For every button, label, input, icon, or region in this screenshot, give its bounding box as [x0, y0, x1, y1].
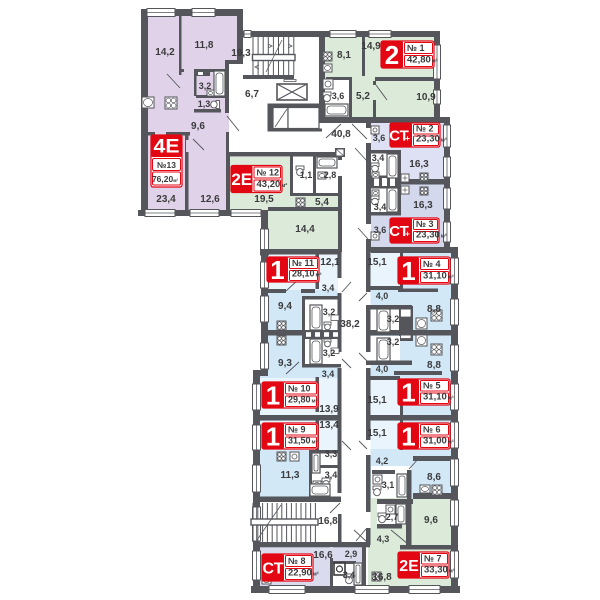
svg-text:м²: м² — [448, 395, 454, 402]
svg-text:1,3: 1,3 — [198, 99, 211, 109]
svg-text:29,80: 29,80 — [288, 395, 311, 405]
svg-text:14,4: 14,4 — [295, 224, 315, 235]
svg-text:38,2: 38,2 — [340, 319, 360, 330]
svg-text:№ 8: № 8 — [288, 556, 306, 566]
svg-text:31,50: 31,50 — [288, 436, 311, 446]
svg-text:№ 9: № 9 — [288, 425, 306, 435]
svg-text:14,9: 14,9 — [361, 41, 381, 52]
svg-text:№ 6: № 6 — [423, 425, 441, 435]
svg-text:33,30: 33,30 — [424, 565, 448, 576]
svg-text:4,0: 4,0 — [376, 364, 389, 374]
svg-text:м²: м² — [448, 274, 454, 281]
svg-text:23,30: 23,30 — [416, 230, 440, 241]
svg-text:16,3: 16,3 — [413, 200, 433, 211]
svg-text:4,3: 4,3 — [377, 534, 390, 544]
svg-text:13,4: 13,4 — [319, 420, 339, 431]
svg-text:13,9: 13,9 — [319, 404, 339, 415]
svg-text:23,30: 23,30 — [416, 134, 440, 145]
svg-text:2,7: 2,7 — [386, 512, 399, 522]
svg-text:1: 1 — [401, 256, 415, 286]
svg-text:1: 1 — [401, 377, 415, 407]
svg-text:23,4: 23,4 — [156, 194, 176, 205]
svg-text:м²: м² — [316, 272, 322, 279]
svg-text:5,2: 5,2 — [356, 91, 370, 102]
svg-text:+: + — [405, 134, 410, 143]
svg-text:3,2: 3,2 — [199, 81, 212, 91]
svg-text:9,4: 9,4 — [278, 301, 292, 312]
svg-text:4,0: 4,0 — [376, 291, 389, 301]
svg-text:9,3: 9,3 — [278, 358, 292, 369]
svg-text:м²: м² — [313, 571, 319, 578]
svg-text:3,1: 3,1 — [382, 480, 395, 490]
svg-text:№ 7: № 7 — [424, 554, 442, 564]
svg-text:1: 1 — [401, 421, 415, 451]
svg-text:2Е: 2Е — [231, 170, 252, 189]
svg-text:12,1: 12,1 — [320, 257, 340, 268]
svg-text:+: + — [405, 230, 410, 239]
svg-text:м²: м² — [449, 568, 455, 575]
svg-text:11,3: 11,3 — [281, 470, 300, 481]
svg-text:м²: м² — [432, 58, 438, 65]
svg-text:9,6: 9,6 — [424, 515, 438, 526]
svg-text:3,4: 3,4 — [372, 153, 385, 163]
svg-text:12,6: 12,6 — [200, 194, 220, 205]
svg-text:м²: м² — [312, 439, 318, 446]
svg-text:16,3: 16,3 — [409, 159, 429, 170]
svg-text:3,2: 3,2 — [323, 348, 336, 358]
svg-text:3,4: 3,4 — [343, 570, 356, 580]
svg-text:№13: №13 — [157, 160, 176, 170]
svg-text:3,6: 3,6 — [332, 91, 345, 101]
svg-text:3,2: 3,2 — [323, 307, 336, 317]
svg-text:28,10: 28,10 — [292, 269, 315, 279]
svg-text:11,8: 11,8 — [195, 40, 214, 51]
svg-text:3,6: 3,6 — [374, 225, 387, 235]
svg-text:м²: м² — [281, 182, 287, 189]
svg-text:15,1: 15,1 — [367, 395, 387, 406]
svg-text:2: 2 — [385, 40, 399, 70]
svg-text:15,1: 15,1 — [367, 257, 387, 268]
svg-text:2,8: 2,8 — [324, 170, 337, 180]
svg-text:1: 1 — [270, 255, 284, 285]
svg-text:4,2: 4,2 — [376, 456, 389, 466]
svg-text:м²: м² — [441, 137, 447, 144]
svg-text:6,7: 6,7 — [245, 89, 259, 100]
svg-text:№ 10: № 10 — [288, 384, 311, 394]
svg-text:31,00: 31,00 — [423, 436, 447, 447]
svg-text:№ 12: № 12 — [257, 168, 280, 178]
svg-text:8,1: 8,1 — [337, 50, 351, 61]
svg-text:№ 11: № 11 — [292, 258, 314, 268]
svg-text:16,6: 16,6 — [313, 550, 333, 561]
svg-text:10,9: 10,9 — [416, 92, 436, 103]
svg-text:43,20: 43,20 — [257, 179, 281, 190]
svg-text:3,2: 3,2 — [387, 314, 400, 324]
svg-text:1: 1 — [266, 380, 280, 410]
svg-text:9,6: 9,6 — [191, 121, 205, 132]
svg-text:19,3: 19,3 — [231, 48, 251, 59]
svg-text:3,4: 3,4 — [325, 470, 338, 480]
svg-text:3,4: 3,4 — [322, 369, 335, 379]
svg-text:19,5: 19,5 — [254, 194, 274, 205]
svg-text:8,8: 8,8 — [427, 360, 441, 371]
svg-text:3,4: 3,4 — [322, 283, 335, 293]
svg-text:3,3: 3,3 — [325, 449, 338, 459]
svg-text:4Е: 4Е — [154, 137, 180, 158]
svg-text:1,1: 1,1 — [300, 170, 313, 180]
svg-text:м²: м² — [441, 233, 447, 240]
svg-text:СТ: СТ — [263, 560, 284, 577]
svg-text:31,10: 31,10 — [423, 392, 447, 403]
svg-text:м²: м² — [448, 439, 454, 446]
svg-text:42,80: 42,80 — [407, 55, 431, 66]
svg-text:15,1: 15,1 — [367, 428, 387, 439]
svg-text:31,10: 31,10 — [423, 271, 447, 282]
svg-text:2,9: 2,9 — [345, 549, 358, 559]
svg-text:8,8: 8,8 — [427, 304, 441, 315]
svg-text:№ 4: № 4 — [423, 259, 441, 269]
svg-text:м²: м² — [312, 398, 318, 405]
svg-text:№ 2: № 2 — [416, 124, 434, 134]
svg-text:3,6: 3,6 — [373, 133, 386, 143]
svg-text:3,4: 3,4 — [374, 202, 387, 212]
svg-text:16,8: 16,8 — [318, 516, 338, 527]
svg-text:3,2: 3,2 — [387, 337, 400, 347]
svg-text:16,8: 16,8 — [372, 572, 392, 583]
svg-text:№ 5: № 5 — [423, 381, 441, 391]
svg-text:№ 3: № 3 — [416, 219, 434, 229]
svg-text:14,2: 14,2 — [155, 47, 175, 58]
svg-text:8,6: 8,6 — [427, 472, 441, 483]
svg-text:2Е: 2Е — [399, 558, 419, 575]
svg-text:№ 1: № 1 — [407, 43, 425, 53]
svg-text:22,90: 22,90 — [288, 568, 312, 579]
svg-text:1: 1 — [266, 421, 280, 451]
svg-text:5,4: 5,4 — [315, 197, 329, 208]
svg-text:40,8: 40,8 — [331, 129, 351, 140]
